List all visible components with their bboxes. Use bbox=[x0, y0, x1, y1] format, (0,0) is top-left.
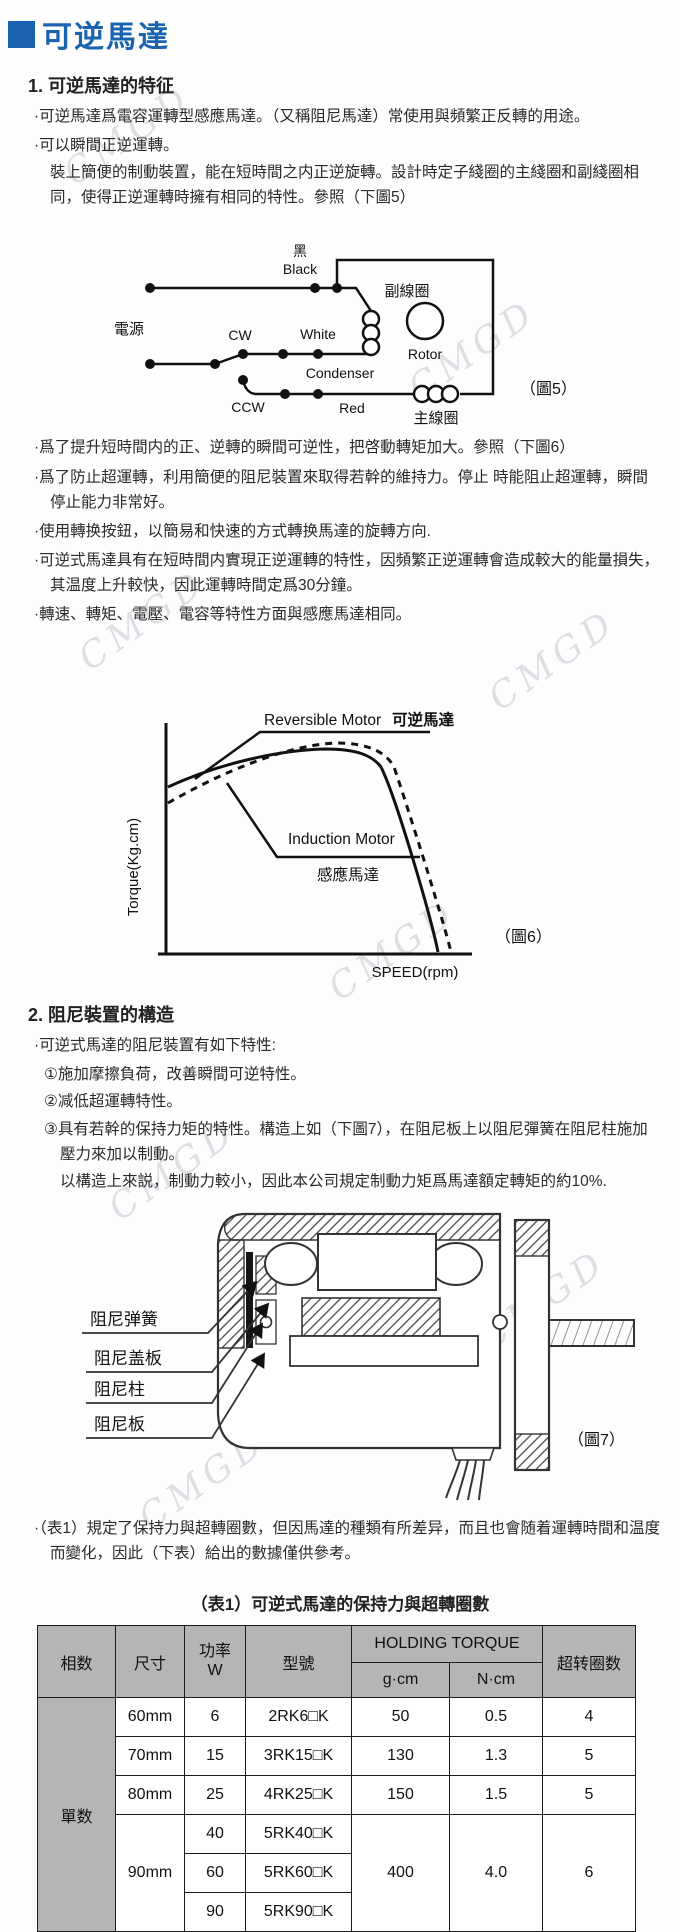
cell-ncm: 4.0 bbox=[450, 1815, 543, 1932]
numbered-item: ①施加摩擦負荷，改善瞬間可逆特性。 bbox=[44, 1062, 662, 1087]
section-2-heading: 2. 阻尼裝置的構造 bbox=[28, 1001, 664, 1027]
fig5-circuit-diagram: 黑 Black 電源 CW White CCW Condenser Red 副線… bbox=[100, 216, 660, 431]
label-damping-spring: 阻尼弹簧 bbox=[90, 1310, 158, 1329]
label-cw: CW bbox=[228, 327, 252, 343]
label-ccw: CCW bbox=[231, 399, 265, 415]
cell-ncm: 1.3 bbox=[450, 1737, 543, 1776]
flange-hatch-bottom bbox=[515, 1434, 549, 1470]
holding-torque-table: 相数 尺寸 功率 W 型號 HOLDING TORQUE 超转圈数 g·cm N… bbox=[37, 1625, 636, 1932]
col-header-gcm: g·cm bbox=[352, 1663, 450, 1698]
cell-ncm: 1.5 bbox=[450, 1776, 543, 1815]
aux-coil-loop bbox=[363, 339, 379, 355]
cell-power: 25 bbox=[185, 1776, 246, 1815]
cell-model: 5RK40□K bbox=[246, 1815, 352, 1854]
fig7-motor-cross-section: 阻尼弹簧 阻尼盖板 阻尼柱 阻尼板 （圖7） bbox=[60, 1202, 680, 1502]
label-reversible-cn: 可逆馬達 bbox=[392, 710, 455, 729]
cell-model: 3RK15□K bbox=[246, 1737, 352, 1776]
curve-reversible-motor bbox=[168, 749, 438, 952]
bullet-paragraph: ·使用轉换按鈕，以簡易和快速的方式轉换馬達的旋轉方向. bbox=[34, 519, 662, 544]
cell-size: 60mm bbox=[116, 1698, 185, 1737]
paragraph-continuation: 以構造上來説，制動力較小，因此本公司規定制動力矩爲馬達額定轉矩的約10%. bbox=[60, 1169, 662, 1194]
cell-ncm: 0.5 bbox=[450, 1698, 543, 1737]
col-header-ncm: N·cm bbox=[450, 1663, 543, 1698]
col-header-power-line2: W bbox=[189, 1662, 241, 1680]
fig5-caption: （圖5） bbox=[520, 380, 577, 398]
col-header-size: 尺寸 bbox=[116, 1626, 185, 1698]
label-black-en: Black bbox=[283, 261, 318, 277]
blue-square-bullet-icon bbox=[8, 21, 35, 48]
table-row: 80mm 25 4RK25□K 150 1.5 5 bbox=[38, 1776, 636, 1815]
cell-gcm: 130 bbox=[352, 1737, 450, 1776]
cell-overrun: 5 bbox=[543, 1776, 636, 1815]
label-damping-plate: 阻尼板 bbox=[94, 1415, 145, 1434]
document-page: 可逆馬達 1. 可逆馬達的特征 ·可逆馬達爲電容運轉型感應馬達。（又稱阻尼馬達）… bbox=[0, 0, 680, 1932]
y-axis-label: Torque(Kg.cm) bbox=[125, 818, 142, 916]
label-reversible-en: Reversible Motor bbox=[264, 712, 381, 729]
col-header-holding-torque: HOLDING TORQUE bbox=[352, 1626, 543, 1663]
label-induction-en: Induction Motor bbox=[288, 831, 395, 848]
fig7-caption: （圖7） bbox=[568, 1431, 625, 1449]
page-title: 可逆馬達 bbox=[42, 12, 170, 56]
main-coil-loop bbox=[442, 386, 458, 402]
damping-pin bbox=[261, 1316, 272, 1327]
cell-size: 80mm bbox=[116, 1776, 185, 1815]
cell-phase: 單数 bbox=[38, 1698, 116, 1932]
fig6-caption: （圖6） bbox=[495, 928, 552, 946]
bullet-paragraph: ·爲了提升短時間内的正、逆轉的瞬間可逆性，把啓動轉矩加大。參照（下圖6） bbox=[34, 435, 662, 460]
cell-model: 2RK6□K bbox=[246, 1698, 352, 1737]
label-induction-cn: 感應馬達 bbox=[317, 865, 379, 884]
cell-power: 15 bbox=[185, 1737, 246, 1776]
cell-size: 90mm bbox=[116, 1815, 185, 1932]
bullet-paragraph: ·可逆式馬達具有在短時間内實現正逆運轉的特性，因頻繁正逆運轉會造成較大的能量損失… bbox=[34, 548, 662, 598]
label-damping-pillar: 阻尼柱 bbox=[94, 1380, 145, 1399]
wire-red bbox=[243, 380, 414, 394]
label-red: Red bbox=[339, 400, 365, 416]
label-main-coil: 主線圈 bbox=[413, 410, 458, 427]
cell-gcm: 400 bbox=[352, 1815, 450, 1932]
label-white: White bbox=[300, 326, 336, 342]
bearing bbox=[493, 1315, 507, 1329]
label-rotor: Rotor bbox=[408, 346, 443, 362]
section-1-heading: 1. 可逆馬達的特征 bbox=[28, 72, 664, 98]
lead-wire bbox=[468, 1460, 476, 1500]
table-row: 單数 60mm 6 2RK6□K 50 0.5 4 bbox=[38, 1698, 636, 1737]
cell-gcm: 50 bbox=[352, 1698, 450, 1737]
lead-wire bbox=[479, 1460, 484, 1500]
bullet-paragraph: ·可以瞬間正逆運轉。 bbox=[34, 133, 662, 158]
label-black-cn: 黑 bbox=[293, 243, 307, 259]
damping-plate-part bbox=[246, 1252, 253, 1348]
flange-hatch-top bbox=[515, 1220, 549, 1256]
cell-model: 5RK60□K bbox=[246, 1854, 352, 1893]
table-title: （表1）可逆式馬達的保持力與超轉圈數 bbox=[0, 1590, 680, 1615]
cell-model: 5RK90□K bbox=[246, 1893, 352, 1932]
wire-boot bbox=[452, 1448, 494, 1460]
rotor-stack bbox=[302, 1298, 440, 1336]
bullet-paragraph: ·爲了防止超運轉，利用簡便的阻尼裝置來取得若幹的維持力。停止 時能阻止超運轉，瞬… bbox=[34, 465, 662, 515]
bullet-paragraph: ·可逆式馬達的阻尼裝置有如下特性: bbox=[34, 1033, 662, 1058]
paragraph-continuation: 裝上簡便的制動裝置，能在短時間之内正逆旋轉。設計時定子綫圈的主綫圈和副綫圈相同，… bbox=[50, 160, 662, 210]
label-power: 電源 bbox=[114, 321, 144, 338]
col-header-phase: 相数 bbox=[38, 1626, 116, 1698]
col-header-model: 型號 bbox=[246, 1626, 352, 1698]
stator-stack bbox=[318, 1234, 436, 1290]
label-damping-cover: 阻尼盖板 bbox=[94, 1349, 162, 1368]
rear-flange bbox=[515, 1220, 549, 1470]
cell-size: 70mm bbox=[116, 1737, 185, 1776]
casing-hatch-front bbox=[218, 1240, 244, 1348]
table-row: 90mm 40 5RK40□K 400 4.0 6 bbox=[38, 1815, 636, 1854]
bullet-paragraph: ·（表1）規定了保持力與超轉圈數，但因馬達的種類有所差异，而且也會随着運轉時間和… bbox=[34, 1516, 662, 1566]
x-axis-label: SPEED(rpm) bbox=[372, 964, 459, 981]
rotor-shaft-sleeve bbox=[290, 1336, 478, 1366]
output-shaft bbox=[549, 1320, 634, 1346]
rotor-circle bbox=[407, 303, 443, 339]
cell-power: 6 bbox=[185, 1698, 246, 1737]
bullet-paragraph: ·轉速、轉矩、電壓、電容等特性方面與感應馬達相同。 bbox=[34, 602, 662, 627]
cell-overrun: 6 bbox=[543, 1815, 636, 1932]
label-aux-coil: 副線圈 bbox=[384, 283, 429, 300]
col-header-power-line1: 功率 bbox=[189, 1643, 241, 1661]
cell-overrun: 5 bbox=[543, 1737, 636, 1776]
numbered-item: ③具有若幹的保持力矩的特性。構造上如（下圖7），在阻尼板上以阻尼彈簧在阻尼柱施加… bbox=[44, 1117, 662, 1167]
bullet-paragraph: ·可逆馬達爲電容運轉型感應馬達。（又稱阻尼馬達）常使用與頻繁正反轉的用途。 bbox=[34, 104, 662, 129]
col-header-power: 功率 W bbox=[185, 1626, 246, 1698]
cell-power: 90 bbox=[185, 1893, 246, 1932]
col-header-overrun: 超转圈数 bbox=[543, 1626, 636, 1698]
page-header: 可逆馬達 bbox=[0, 0, 680, 58]
lead-wire bbox=[446, 1460, 460, 1498]
wire-to-aux-coil bbox=[337, 288, 371, 311]
cell-power: 60 bbox=[185, 1854, 246, 1893]
winding-loop-left bbox=[265, 1243, 317, 1285]
numbered-item: ②减低超運轉特性。 bbox=[44, 1089, 662, 1114]
cell-overrun: 4 bbox=[543, 1698, 636, 1737]
fig6-torque-speed-chart: Reversible Motor 可逆馬達 Induction Motor 感應… bbox=[100, 637, 660, 987]
cell-gcm: 150 bbox=[352, 1776, 450, 1815]
winding-loop-right bbox=[430, 1243, 482, 1285]
cell-power: 40 bbox=[185, 1815, 246, 1854]
label-condenser: Condenser bbox=[306, 365, 375, 381]
cell-model: 4RK25□K bbox=[246, 1776, 352, 1815]
table-row: 70mm 15 3RK15□K 130 1.3 5 bbox=[38, 1737, 636, 1776]
